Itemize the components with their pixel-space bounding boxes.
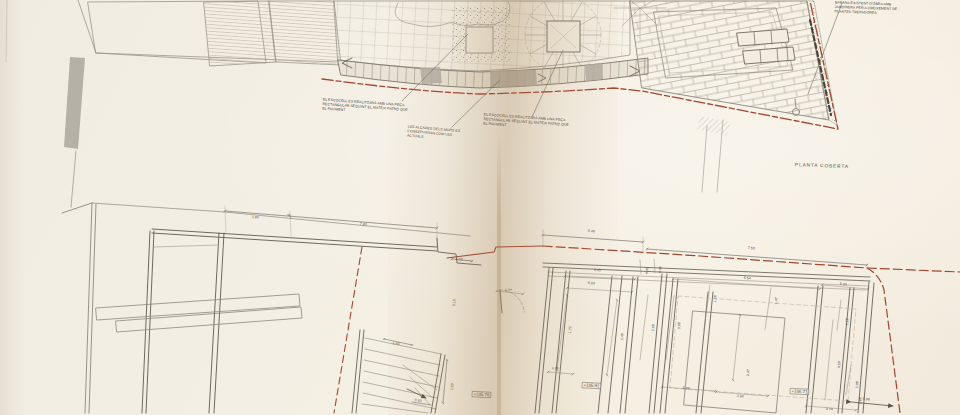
dimension-label: 2.28 [845, 318, 849, 325]
dimension-label: 5.48 [588, 229, 595, 233]
dimension-label: 2.40 [620, 333, 624, 340]
dimension-label: 5.98 [863, 397, 870, 401]
striped-roof-panels [204, 1, 341, 66]
dimension-label: 7.53 [748, 246, 755, 250]
dimension-label: 2.88 [858, 397, 862, 404]
left-slabs [96, 294, 302, 332]
dimension-label: 1.40 [393, 341, 400, 345]
dimension-label: 2.90 [737, 394, 744, 398]
level-marker: +106.71 [790, 388, 810, 395]
brick-terrace [630, 1, 829, 120]
dimension-label: 0.50 [415, 398, 422, 402]
stair-direction-arrow [407, 389, 426, 398]
dimension-label: 0.45 [645, 267, 649, 274]
dimension-label: 1.72 [568, 326, 572, 333]
plan-linework [0, 0, 960, 415]
dimension-label: 3.74 [826, 407, 833, 411]
left-wing-walls [142, 229, 437, 413]
photographed-plan-sheet: EL ESCOCELL ES REALITZARÀ AMB UNA PEÇA R… [0, 0, 960, 415]
dimension-label: 2.98 [651, 324, 655, 331]
dimension-label: 2.50 [450, 383, 454, 390]
dimension-label: 1.77 [505, 288, 512, 292]
dimension-label: 1.47 [774, 297, 778, 304]
dimension-label: 1.28 [713, 295, 717, 302]
dimension-label: 7.80 [360, 222, 367, 226]
dimension-label: 3.47 [746, 369, 750, 376]
dimension-label: 1.06 [552, 366, 559, 370]
dimension-label: 5.54 [744, 276, 751, 280]
under-terrace-hatch [697, 116, 731, 192]
street-wall-band [543, 263, 870, 290]
dimension-label: 3.08 [677, 322, 681, 329]
dimension-label: 3.45 [594, 268, 601, 272]
interior-dimension-lines [497, 259, 893, 410]
dimension-label: 5.93 [588, 281, 595, 285]
dimension-label: 3.10 [452, 299, 456, 306]
party-wall-strip [64, 57, 85, 207]
floor-plan [62, 203, 960, 413]
roof-plan [6, 0, 842, 207]
level-marker: +105.91 [582, 382, 602, 389]
courtyard-outline [684, 311, 785, 413]
dimension-label: 2.08 [855, 381, 859, 388]
note-jardinera: BARANA EXISTENT D'OBRA AMB JARDINERA PER… [835, 0, 911, 16]
level-marker: +105.76 [472, 391, 492, 398]
planter-stippled [452, 7, 510, 62]
dimension-label: 5.00 [683, 386, 690, 390]
dimension-label: 1.52 [456, 257, 463, 261]
exterior-dimension-lines [452, 230, 867, 265]
dimension-label: 5.00 [840, 282, 847, 286]
dimension-label: 0.45 [658, 266, 662, 273]
dimension-label: 1.80 [252, 215, 259, 219]
paper-edge-line [6, 0, 7, 62]
dimension-label: 4.50 [837, 361, 841, 368]
